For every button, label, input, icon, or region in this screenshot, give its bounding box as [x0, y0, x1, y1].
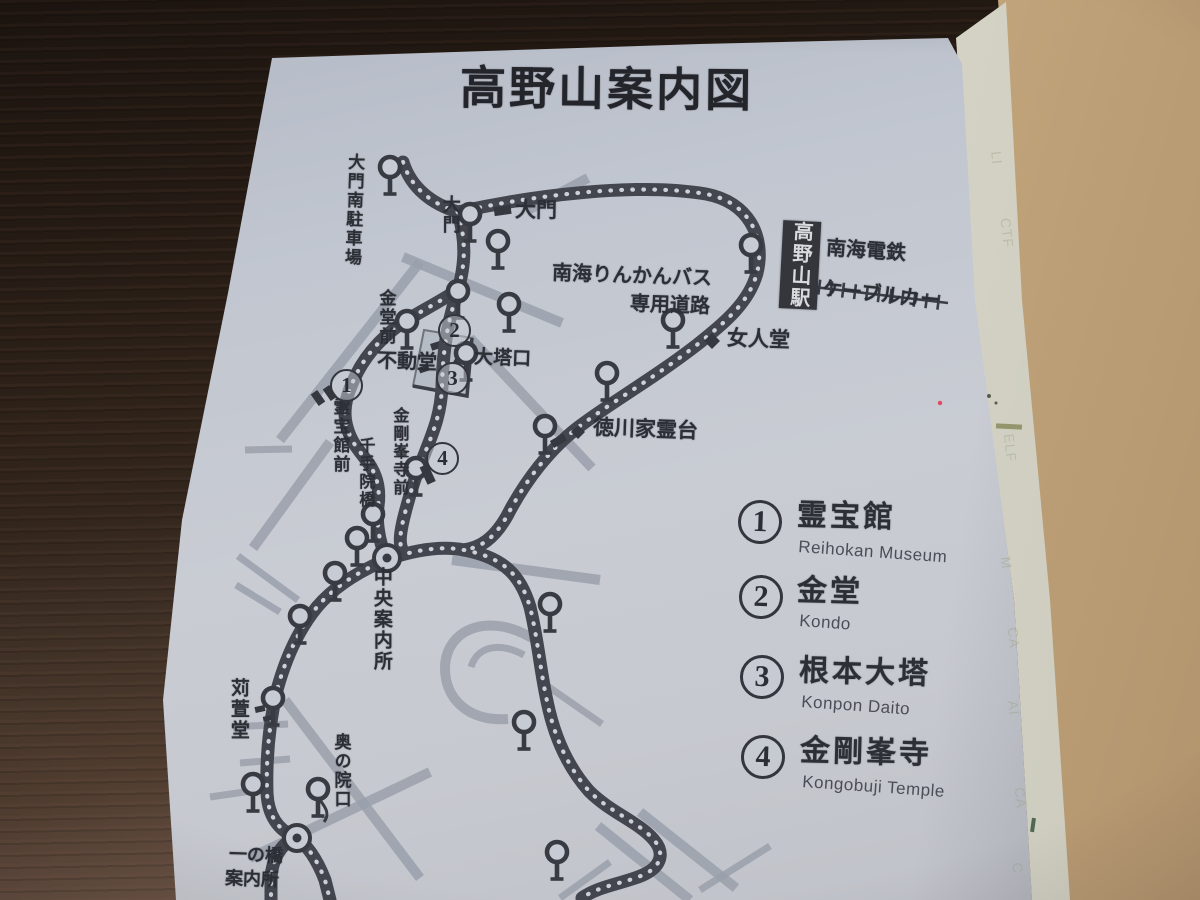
label-nyonindo: 女人堂	[727, 327, 791, 353]
map-number-1: 1	[330, 369, 363, 402]
legend-name-1: 霊宝館	[797, 499, 897, 536]
bus-stop-icon	[514, 712, 534, 749]
legend-name-2: 金堂	[797, 574, 864, 610]
bus-stop-icon	[397, 311, 417, 348]
legend-name-4: 金剛峯寺	[800, 734, 933, 772]
page-title: 高野山案内図	[460, 62, 755, 118]
koyasan-station-box: 高野山駅	[779, 220, 822, 310]
edge-showthrough-text: AI	[1005, 700, 1023, 717]
bus-stop-icon	[499, 294, 519, 331]
label-ichinohashi-line2: 案内所	[225, 868, 280, 891]
page-edge-tick	[1030, 818, 1036, 832]
map-number-3: 3	[436, 362, 469, 395]
map-number-4: 4	[426, 442, 459, 475]
label-reihokan-mae: 霊宝館前	[330, 398, 350, 474]
edge-showthrough-text: CA	[1005, 626, 1023, 649]
label-karukayado: 苅萱堂	[227, 678, 249, 741]
bus-stop-icon	[243, 774, 263, 811]
dust-speck	[995, 402, 998, 405]
bus-stop-icon	[380, 157, 400, 194]
edge-showthrough-text: C	[1009, 862, 1026, 875]
bus-stop-icon	[488, 231, 508, 268]
label-okunoin-guchi: 奥の院口	[331, 733, 351, 809]
label-kongobuji-mae: 金剛峯寺前	[389, 407, 407, 497]
bus-stop-icon	[547, 842, 567, 879]
label-daimon-parking: 大門南駐車場	[341, 153, 365, 268]
label-daimon-stop: 大門	[440, 195, 461, 235]
page-edge-mark	[996, 423, 1022, 429]
label-fudodo: 不動堂	[377, 350, 438, 375]
edge-showthrough-text: LI	[988, 150, 1005, 165]
dust-speck	[987, 394, 991, 398]
map-number-2: 2	[438, 314, 471, 347]
label-chuo-annaijo: 中央案内所	[370, 567, 392, 672]
legend-name-3: 根本大塔	[799, 654, 932, 692]
label-daimon-gate: 大門	[515, 199, 557, 224]
label-kondo-mae: 金堂前	[376, 289, 396, 346]
label-ichinohashi-line1: 一の橋	[229, 844, 284, 867]
label-senjuinbashi: 千手院橋	[355, 437, 373, 509]
photo-of-guidebook-map: 高野山案内図 大門南駐車場 大門 金堂前 霊宝館前 金剛峯寺前 千手院橋 中央案…	[0, 0, 1200, 900]
bus-stop-icon	[347, 528, 367, 565]
edge-showthrough-text: CTF	[998, 217, 1017, 249]
legend-romaji-2: Kondo	[799, 611, 852, 634]
label-tokugawa-reidai: 徳川家霊台	[593, 416, 699, 444]
edge-showthrough-text: ELF	[1001, 433, 1020, 463]
camera-artifact-dot	[938, 401, 942, 405]
edge-showthrough-text: CA	[1012, 786, 1030, 809]
map-graphics	[0, 0, 1200, 900]
edge-showthrough-text: M	[998, 556, 1015, 570]
bus-stop-icon	[540, 594, 560, 631]
info-office-icon	[284, 825, 310, 851]
label-daitoguchi: 大塔口	[474, 347, 532, 371]
